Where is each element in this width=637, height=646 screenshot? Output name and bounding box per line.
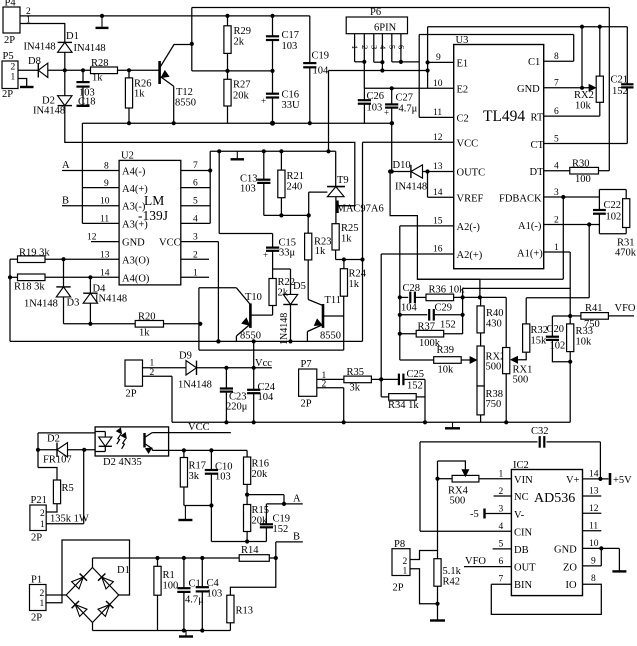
- svg-text:VFO: VFO: [465, 556, 486, 567]
- svg-text:A2(-): A2(-): [457, 222, 481, 233]
- svg-text:100: 100: [163, 581, 179, 592]
- svg-text:4.7μ: 4.7μ: [399, 104, 418, 115]
- svg-text:4.7μ: 4.7μ: [185, 595, 204, 606]
- svg-text:152: 152: [440, 320, 456, 331]
- svg-text:8550: 8550: [320, 331, 341, 342]
- svg-text:R17: R17: [189, 461, 207, 472]
- svg-text:33U: 33U: [282, 100, 301, 111]
- svg-text:2P: 2P: [301, 399, 312, 410]
- svg-text:A3(+): A3(+): [122, 220, 148, 231]
- svg-text:8550: 8550: [240, 331, 261, 342]
- svg-text:IC2: IC2: [513, 460, 529, 471]
- svg-text:8550: 8550: [175, 98, 196, 109]
- svg-text:R42: R42: [443, 577, 461, 588]
- svg-text:A4(-): A4(-): [122, 167, 146, 178]
- svg-text:IO: IO: [566, 580, 577, 591]
- svg-text:104: 104: [401, 303, 418, 314]
- svg-text:C4: C4: [207, 578, 220, 589]
- svg-text:RX2: RX2: [574, 90, 594, 101]
- svg-text:C20: C20: [547, 324, 565, 335]
- svg-text:R30: R30: [572, 159, 590, 170]
- svg-text:1N4148: 1N4148: [24, 299, 58, 310]
- svg-text:A1(+): A1(+): [517, 249, 543, 260]
- svg-text:15k: 15k: [531, 336, 548, 347]
- svg-text:R40: R40: [486, 308, 504, 319]
- svg-text:OUTC: OUTC: [457, 168, 486, 179]
- svg-text:DB: DB: [514, 545, 529, 556]
- svg-text:104: 104: [313, 66, 330, 77]
- svg-text:R37: R37: [418, 322, 436, 333]
- svg-text:GND: GND: [517, 84, 540, 95]
- svg-text:D8: D8: [28, 56, 41, 67]
- svg-text:C25: C25: [407, 369, 425, 380]
- svg-text:VCC: VCC: [159, 238, 181, 249]
- svg-text:2k: 2k: [234, 37, 245, 48]
- svg-text:500: 500: [513, 375, 529, 386]
- svg-text:R27: R27: [233, 80, 251, 91]
- svg-text:A: A: [293, 494, 301, 505]
- svg-text:R28: R28: [91, 58, 109, 69]
- svg-text:5: 5: [193, 197, 198, 207]
- svg-text:1: 1: [499, 470, 504, 480]
- svg-text:A1(-): A1(-): [518, 221, 542, 232]
- svg-text:V+: V+: [566, 475, 580, 486]
- svg-text:100: 100: [575, 174, 591, 185]
- svg-text:C28: C28: [403, 283, 421, 294]
- svg-text:1: 1: [350, 45, 360, 49]
- svg-text:C1: C1: [528, 57, 540, 68]
- svg-text:6PIN: 6PIN: [374, 23, 397, 34]
- svg-text:A4(O): A4(O): [122, 274, 150, 285]
- svg-text:P8: P8: [394, 539, 405, 550]
- svg-text:4: 4: [499, 522, 504, 532]
- svg-text:T12: T12: [176, 87, 193, 98]
- svg-text:DT: DT: [530, 167, 545, 178]
- svg-text:14: 14: [433, 188, 443, 198]
- svg-text:2P: 2P: [31, 533, 42, 544]
- svg-text:R36 10k: R36 10k: [429, 285, 466, 296]
- svg-text:103: 103: [282, 41, 298, 52]
- svg-text:IN4148: IN4148: [95, 294, 127, 305]
- svg-text:10: 10: [433, 79, 443, 89]
- svg-text:104: 104: [258, 392, 275, 403]
- svg-text:1k: 1k: [139, 328, 150, 339]
- svg-text:T9: T9: [337, 175, 349, 186]
- svg-text:1: 1: [150, 359, 155, 369]
- svg-text:9: 9: [436, 53, 441, 63]
- svg-text:1k: 1k: [341, 234, 352, 245]
- svg-text:A4(+): A4(+): [122, 184, 148, 195]
- svg-text:5: 5: [388, 45, 398, 49]
- svg-text:VCC: VCC: [457, 139, 479, 150]
- svg-text:U2: U2: [121, 151, 134, 162]
- svg-text:470k: 470k: [615, 248, 637, 259]
- svg-text:Vcc: Vcc: [255, 358, 272, 369]
- svg-text:D1: D1: [117, 565, 130, 576]
- svg-text:8: 8: [591, 574, 596, 584]
- svg-text:BIN: BIN: [514, 580, 533, 591]
- svg-text:D2 4N35: D2 4N35: [103, 457, 142, 468]
- svg-text:9: 9: [104, 179, 109, 189]
- svg-text:13: 13: [433, 162, 443, 172]
- svg-text:R29: R29: [234, 26, 252, 37]
- svg-text:1N4148: 1N4148: [279, 313, 290, 345]
- svg-text:16: 16: [433, 245, 443, 255]
- svg-text:152: 152: [407, 381, 423, 392]
- svg-text:NC: NC: [514, 492, 529, 503]
- svg-text:R39: R39: [437, 345, 455, 356]
- svg-text:A: A: [62, 160, 70, 171]
- svg-text:750: 750: [584, 319, 600, 330]
- svg-text:GND: GND: [554, 545, 577, 556]
- svg-text:1: 1: [403, 567, 408, 577]
- svg-text:103: 103: [240, 184, 256, 195]
- svg-text:T11: T11: [325, 295, 342, 306]
- svg-text:A3(O): A3(O): [122, 256, 150, 267]
- svg-text:103: 103: [367, 103, 383, 114]
- svg-text:RT: RT: [531, 113, 544, 124]
- svg-text:VREF: VREF: [457, 194, 484, 205]
- svg-text:1k: 1k: [315, 246, 326, 257]
- svg-text:13: 13: [589, 487, 599, 497]
- svg-text:IN4148: IN4148: [33, 106, 65, 117]
- svg-text:10k: 10k: [438, 365, 455, 376]
- svg-text:750: 750: [486, 399, 502, 410]
- svg-text:500: 500: [486, 362, 502, 373]
- svg-text:11: 11: [589, 522, 598, 532]
- svg-text:D10: D10: [393, 160, 411, 171]
- svg-text:20k: 20k: [233, 91, 250, 102]
- svg-text:102: 102: [550, 341, 566, 352]
- svg-text:U3: U3: [456, 35, 469, 46]
- svg-text:R25: R25: [341, 223, 359, 234]
- svg-text:R24: R24: [349, 269, 367, 280]
- svg-text:P6: P6: [370, 7, 381, 18]
- svg-text:R21: R21: [287, 171, 305, 182]
- svg-text:IN4148: IN4148: [24, 42, 56, 53]
- svg-text:E2: E2: [457, 85, 469, 96]
- svg-text:D2: D2: [47, 434, 60, 445]
- svg-text:C19: C19: [273, 514, 291, 525]
- svg-text:R16: R16: [252, 459, 270, 470]
- svg-text:B: B: [293, 532, 300, 543]
- svg-text:P7: P7: [301, 359, 312, 370]
- svg-text:+5V: +5V: [613, 475, 632, 486]
- svg-text:FR107: FR107: [43, 455, 72, 466]
- svg-text:P21: P21: [31, 495, 47, 506]
- svg-text:152: 152: [273, 524, 289, 535]
- svg-text:C2: C2: [457, 114, 469, 125]
- svg-text:D3: D3: [67, 298, 80, 309]
- svg-text:10k: 10k: [575, 101, 592, 112]
- svg-text:11: 11: [100, 215, 109, 225]
- svg-text:D9: D9: [179, 351, 192, 362]
- svg-text:R34 1k: R34 1k: [388, 400, 419, 411]
- svg-text:11: 11: [433, 108, 442, 118]
- svg-text:240: 240: [287, 182, 303, 193]
- svg-text:2: 2: [11, 63, 16, 73]
- svg-text:1k: 1k: [134, 89, 145, 100]
- svg-text:R5: R5: [62, 483, 74, 494]
- svg-text:+: +: [261, 96, 266, 106]
- svg-text:+: +: [384, 108, 389, 118]
- svg-text:2P: 2P: [393, 583, 404, 594]
- svg-text:MAC97A6: MAC97A6: [337, 204, 384, 215]
- svg-text:R1: R1: [163, 570, 175, 581]
- svg-text:CIN: CIN: [514, 528, 533, 539]
- svg-text:2P: 2P: [2, 89, 13, 100]
- svg-text:2P: 2P: [31, 613, 42, 624]
- svg-text:C18: C18: [78, 97, 96, 108]
- svg-text:103: 103: [215, 472, 231, 483]
- svg-text:6: 6: [499, 557, 504, 567]
- svg-text:R20: R20: [138, 312, 156, 323]
- svg-text:2: 2: [40, 509, 45, 519]
- svg-text:T10: T10: [245, 292, 262, 303]
- svg-text:7: 7: [193, 161, 198, 171]
- svg-text:A2(+): A2(+): [457, 250, 483, 261]
- svg-text:2k: 2k: [278, 288, 289, 299]
- svg-text:VIN: VIN: [514, 475, 533, 486]
- svg-text:33μ: 33μ: [279, 248, 296, 259]
- svg-text:15: 15: [433, 217, 443, 227]
- svg-text:B: B: [62, 196, 69, 207]
- svg-text:1: 1: [11, 73, 16, 83]
- svg-text:+: +: [263, 250, 268, 260]
- svg-text:CT: CT: [531, 140, 545, 151]
- svg-text:8: 8: [104, 162, 109, 172]
- svg-text:GND: GND: [122, 238, 145, 249]
- svg-text:1: 1: [40, 520, 45, 530]
- svg-text:430: 430: [486, 319, 502, 330]
- svg-text:VCC: VCC: [188, 422, 210, 433]
- svg-text:LM: LM: [144, 193, 164, 208]
- svg-text:R13: R13: [236, 606, 254, 617]
- svg-text:7: 7: [499, 575, 504, 585]
- svg-text:220μ: 220μ: [226, 402, 248, 413]
- svg-text:2: 2: [403, 557, 408, 567]
- svg-text:C22: C22: [604, 200, 622, 211]
- svg-text:ZO: ZO: [563, 563, 577, 574]
- svg-text:D5: D5: [293, 281, 306, 292]
- svg-text:6: 6: [397, 45, 407, 49]
- svg-text:3k: 3k: [350, 383, 361, 394]
- svg-text:C19: C19: [312, 51, 330, 62]
- svg-text:P1: P1: [31, 575, 42, 586]
- svg-text:500: 500: [450, 496, 466, 507]
- svg-text:E1: E1: [457, 59, 469, 70]
- svg-text:10k: 10k: [576, 337, 593, 348]
- svg-text:12: 12: [433, 133, 443, 143]
- svg-text:R41: R41: [585, 303, 603, 314]
- svg-text:C21: C21: [611, 75, 629, 86]
- svg-text:152: 152: [612, 86, 628, 97]
- svg-text:R19 3k: R19 3k: [19, 248, 50, 259]
- svg-text:135k 1W: 135k 1W: [50, 514, 89, 525]
- svg-text:FDBACK: FDBACK: [499, 194, 542, 205]
- svg-text:IN4148: IN4148: [74, 43, 106, 54]
- svg-text:R18 3k: R18 3k: [14, 282, 45, 293]
- svg-text:3k: 3k: [189, 471, 200, 482]
- svg-text:2: 2: [360, 45, 370, 49]
- svg-text:A3(-): A3(-): [122, 202, 146, 213]
- svg-text:AD536: AD536: [534, 491, 575, 506]
- svg-text:C17: C17: [282, 30, 300, 41]
- svg-text:2P: 2P: [126, 389, 137, 400]
- svg-text:12: 12: [589, 504, 599, 514]
- svg-text:102: 102: [606, 212, 622, 223]
- svg-text:3: 3: [370, 45, 380, 49]
- svg-text:R32: R32: [531, 325, 549, 336]
- svg-text:1k: 1k: [349, 279, 360, 290]
- svg-text:D1: D1: [66, 31, 79, 42]
- svg-text:20k: 20k: [252, 469, 269, 480]
- svg-text:4: 4: [554, 162, 559, 172]
- svg-text:9: 9: [591, 557, 596, 567]
- svg-text:C27: C27: [396, 93, 414, 104]
- svg-text:8: 8: [554, 52, 559, 62]
- svg-text:10: 10: [589, 539, 599, 549]
- svg-text:10: 10: [100, 197, 110, 207]
- svg-text:TL494: TL494: [483, 108, 525, 125]
- svg-text:IN4148: IN4148: [395, 182, 427, 193]
- svg-text:C26: C26: [367, 91, 385, 102]
- svg-text:P4: P4: [5, 0, 17, 9]
- svg-text:14: 14: [589, 470, 599, 480]
- svg-text:1: 1: [40, 599, 45, 609]
- svg-text:R35: R35: [347, 367, 365, 378]
- svg-text:5: 5: [499, 540, 504, 550]
- svg-text:1k: 1k: [92, 73, 103, 84]
- svg-text:R14: R14: [241, 545, 259, 556]
- svg-text:2P: 2P: [4, 35, 15, 46]
- svg-text:C29: C29: [435, 303, 453, 314]
- svg-text:-5: -5: [470, 509, 479, 520]
- svg-text:5.1k: 5.1k: [443, 566, 462, 577]
- svg-text:2: 2: [40, 589, 45, 599]
- svg-text:OUT: OUT: [514, 563, 536, 574]
- svg-text:P5: P5: [3, 51, 14, 62]
- svg-text:7: 7: [554, 79, 559, 89]
- svg-text:C16: C16: [282, 90, 300, 101]
- svg-text:C32: C32: [531, 426, 549, 437]
- svg-text:V-: V-: [514, 510, 525, 521]
- svg-text:103: 103: [207, 589, 223, 600]
- svg-text:1N4148: 1N4148: [178, 380, 212, 391]
- svg-text:VFO: VFO: [615, 303, 636, 314]
